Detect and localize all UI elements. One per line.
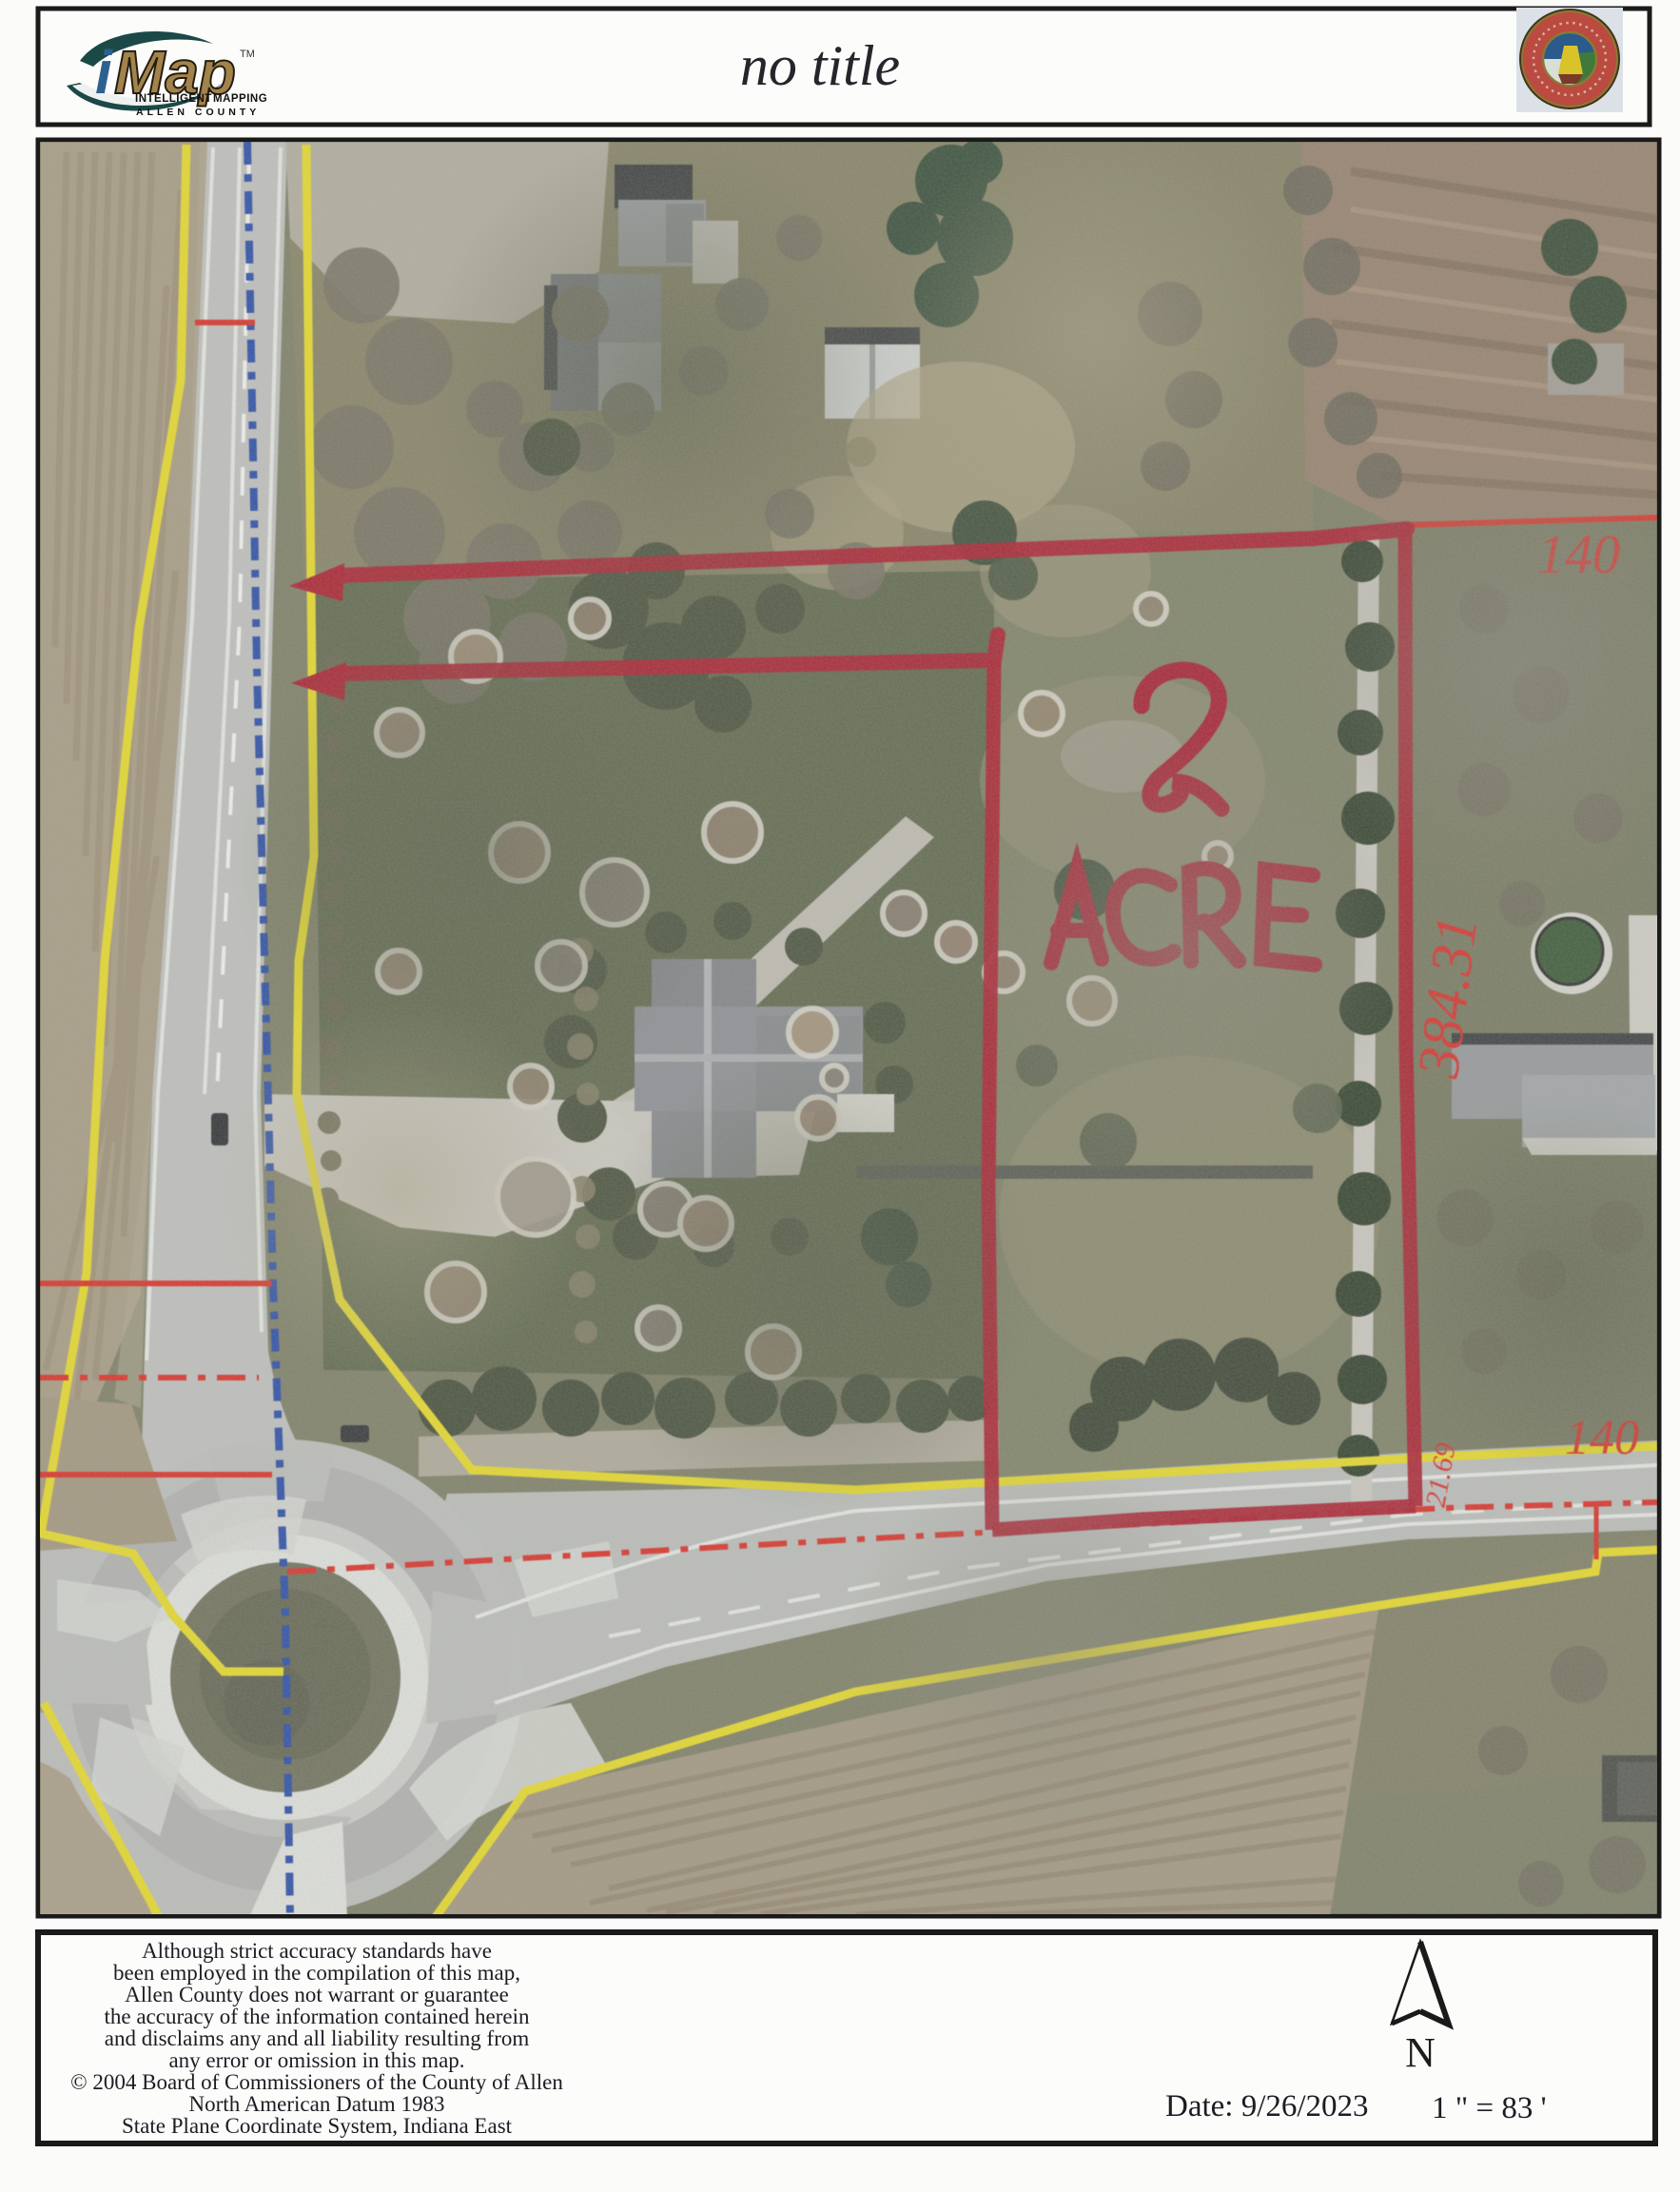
svg-text:Allen County does not warrant: Allen County does not warrant or guarant… (125, 1983, 509, 2006)
svg-text:North American Datum 1983: North American Datum 1983 (189, 2092, 445, 2116)
svg-text:© 2004 Board of Commissioners: © 2004 Board of Commissioners of the Cou… (70, 2070, 563, 2094)
svg-text:Although strict accuracy stand: Although strict accuracy standards have (142, 1939, 492, 1963)
svg-text:State Plane Coordinate System,: State Plane Coordinate System, Indiana E… (122, 2114, 513, 2138)
svg-text:ALLEN COUNTY: ALLEN COUNTY (136, 107, 260, 118)
svg-text:INTELLIGENT: INTELLIGENT (135, 93, 212, 105)
svg-text:TM: TM (240, 49, 255, 60)
svg-text:i: i (95, 38, 113, 107)
svg-text:the accuracy of the informatio: the accuracy of the information containe… (104, 2005, 530, 2028)
svg-text:and disclaims any and all liab: and disclaims any and all liability resu… (105, 2026, 530, 2050)
svg-text:no title: no title (740, 34, 900, 97)
svg-text:Date: 9/26/2023: Date: 9/26/2023 (1165, 2089, 1369, 2123)
svg-text:N: N (1405, 2029, 1436, 2076)
svg-text:1 " = 83 ': 1 " = 83 ' (1432, 2091, 1547, 2125)
svg-text:MAPPING: MAPPING (213, 93, 267, 105)
svg-text:any error or omission in this: any error or omission in this map. (168, 2048, 464, 2072)
svg-text:been employed in the compilati: been employed in the compilation of this… (113, 1961, 520, 1985)
